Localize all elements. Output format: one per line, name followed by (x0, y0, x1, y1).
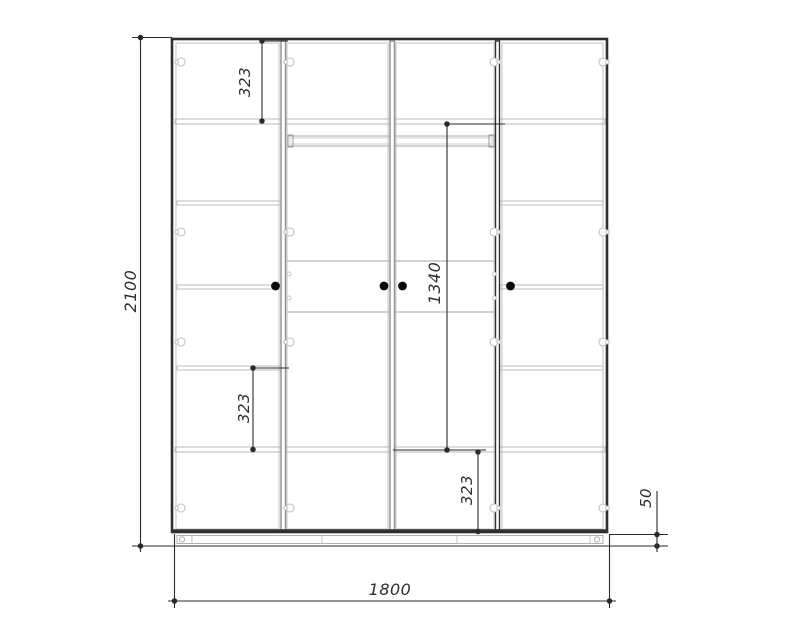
door-panel-4 (502, 43, 603, 529)
door-panel-2 (287, 43, 388, 529)
dimension-label-overall-width: 1800 (369, 580, 412, 599)
shelf-left-2 (177, 285, 281, 289)
handle-icon (380, 282, 389, 291)
shelf-right-1 (500, 201, 603, 205)
drawing-canvas: 2100 1800 50 323 323 1340 323 (0, 0, 785, 642)
dimension-lines (132, 35, 668, 608)
dimension-label-hanging-section: 1340 (425, 262, 444, 305)
dimension-label-plinth-height: 50 (637, 488, 655, 508)
handle-icon (398, 282, 407, 291)
handle-icon (271, 282, 280, 291)
divider-3 (496, 41, 500, 530)
dimension-label-bottom-section: 323 (458, 475, 476, 505)
dimension-label-overall-height: 2100 (121, 270, 140, 313)
dimension-bottom-section (476, 450, 480, 534)
dimension-overall-height (132, 35, 668, 552)
door-panel-1 (176, 43, 279, 529)
plinth (177, 536, 603, 544)
handle-icon (506, 282, 515, 291)
divider-2 (390, 41, 395, 530)
divider-1 (281, 41, 286, 530)
dimension-label-left-shelf: 323 (235, 393, 253, 423)
shelf-right-3 (500, 366, 603, 370)
dimension-label-top-section: 323 (236, 67, 254, 97)
wardrobe-carcass (172, 39, 607, 544)
dimension-hanging-section (393, 122, 505, 452)
wardrobe-drawing: 2100 1800 50 323 323 1340 323 (0, 0, 785, 642)
door-panel-3 (396, 43, 494, 529)
shelf-left-1 (177, 201, 281, 205)
shelf-right-2 (500, 285, 603, 289)
